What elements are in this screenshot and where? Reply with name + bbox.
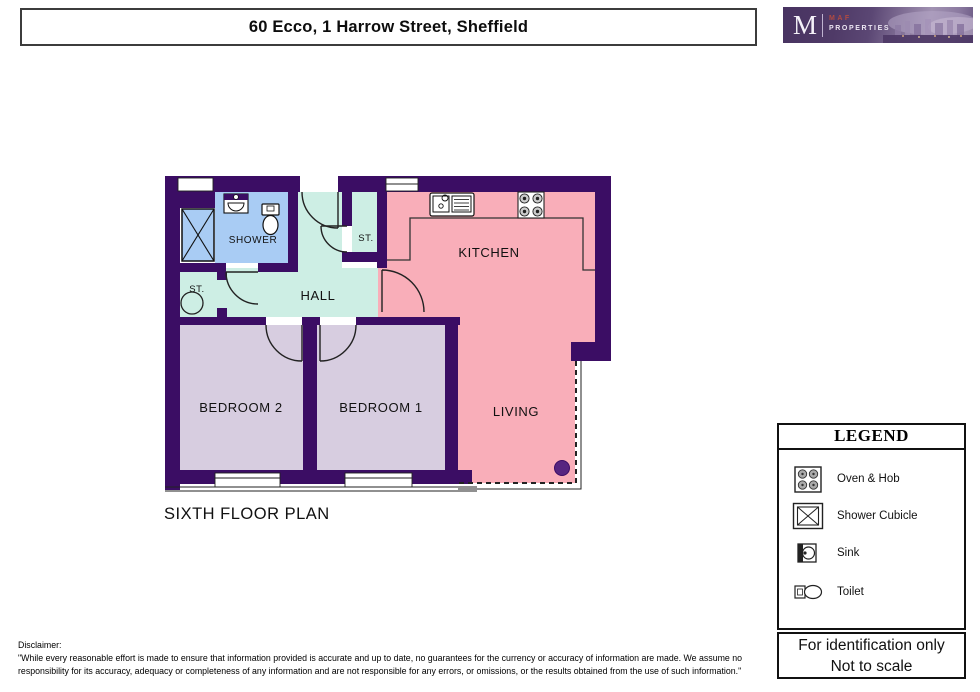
disclaimer: Disclaimer: "While every reasonable effo… bbox=[18, 640, 762, 678]
room-label-hall: HALL bbox=[301, 288, 336, 303]
page: { "header": { "title": "60 Ecco, 1 Harro… bbox=[0, 0, 980, 692]
toilet-icon bbox=[779, 577, 837, 607]
identification-note-line2: Not to scale bbox=[831, 656, 913, 677]
legend-label: Toilet bbox=[837, 586, 864, 598]
wall-segment bbox=[342, 192, 352, 226]
wall-segment bbox=[165, 176, 180, 490]
disclaimer-text: "While every reasonable effort is made t… bbox=[18, 652, 762, 678]
legend-label: Oven & Hob bbox=[837, 473, 900, 485]
shower-cubicle-icon bbox=[182, 209, 214, 261]
oven-hob-icon bbox=[518, 192, 544, 218]
brand-subname: PROPERTIES bbox=[829, 25, 890, 32]
floorplan-svg: SHOWER ST. ST. HALL KITCHEN BEDROOM 2 BE… bbox=[140, 160, 640, 540]
identification-note-line1: For identification only bbox=[798, 635, 944, 656]
oven-hob-icon bbox=[779, 464, 837, 494]
legend-item-toilet: Toilet bbox=[779, 577, 964, 607]
legend-item-shower-cubicle: Shower Cubicle bbox=[779, 501, 964, 531]
wall-segment bbox=[288, 192, 298, 270]
wall-segment bbox=[445, 317, 458, 484]
room-label-bedroom1: BEDROOM 1 bbox=[339, 400, 422, 415]
bedroom1-floor bbox=[317, 325, 445, 470]
legend-panel: LEGEND Oven & Hob Shower Cubicle bbox=[777, 423, 966, 630]
legend-item-sink: Sink bbox=[779, 538, 964, 568]
legend-item-oven-hob: Oven & Hob bbox=[779, 464, 964, 494]
wall-segment bbox=[356, 317, 460, 325]
wall-segment bbox=[180, 192, 215, 208]
basin-icon bbox=[224, 194, 248, 213]
room-label-living: LIVING bbox=[493, 404, 539, 419]
wall-segment bbox=[165, 263, 226, 272]
room-label-storage-left: ST. bbox=[189, 284, 205, 295]
brand-name: MAF bbox=[829, 15, 852, 22]
sink-icon bbox=[430, 193, 474, 216]
logo-monogram: M bbox=[793, 9, 817, 41]
legend-title: LEGEND bbox=[779, 425, 964, 450]
legend-label: Shower Cubicle bbox=[837, 510, 918, 522]
window-icon bbox=[178, 178, 213, 191]
room-label-shower: SHOWER bbox=[229, 235, 278, 246]
page-title: 60 Ecco, 1 Harrow Street, Sheffield bbox=[249, 18, 528, 37]
wall-segment bbox=[303, 325, 317, 470]
bedroom2-floor bbox=[180, 325, 303, 470]
window-icon bbox=[345, 473, 412, 487]
wall-segment bbox=[258, 263, 298, 272]
wall-segment bbox=[571, 342, 611, 361]
wall-segment bbox=[165, 317, 266, 325]
window-icon bbox=[386, 178, 418, 191]
entrance-opening bbox=[300, 176, 338, 192]
toilet-icon bbox=[262, 204, 279, 235]
shower-cubicle-icon bbox=[779, 501, 837, 531]
room-label-storage-top: ST. bbox=[358, 233, 374, 244]
plan-caption: SIXTH FLOOR PLAN bbox=[164, 505, 330, 523]
room-label-bedroom2: BEDROOM 2 bbox=[199, 400, 282, 415]
wall-segment bbox=[302, 317, 320, 325]
brand-logo: M MAF PROPERTIES bbox=[783, 7, 973, 43]
wall-segment bbox=[595, 176, 611, 361]
title-bar: 60 Ecco, 1 Harrow Street, Sheffield bbox=[20, 8, 757, 46]
wall-segment bbox=[165, 470, 458, 484]
room-label-kitchen: KITCHEN bbox=[458, 245, 519, 260]
identification-note: For identification only Not to scale bbox=[777, 632, 966, 679]
sink-icon bbox=[779, 538, 837, 568]
logo-divider bbox=[822, 14, 823, 37]
wall-segment bbox=[443, 470, 472, 484]
column-dot bbox=[555, 461, 570, 476]
wall-segment bbox=[377, 176, 387, 268]
legend-label: Sink bbox=[837, 547, 859, 559]
window-icon bbox=[215, 473, 280, 487]
disclaimer-label: Disclaimer: bbox=[18, 640, 762, 650]
